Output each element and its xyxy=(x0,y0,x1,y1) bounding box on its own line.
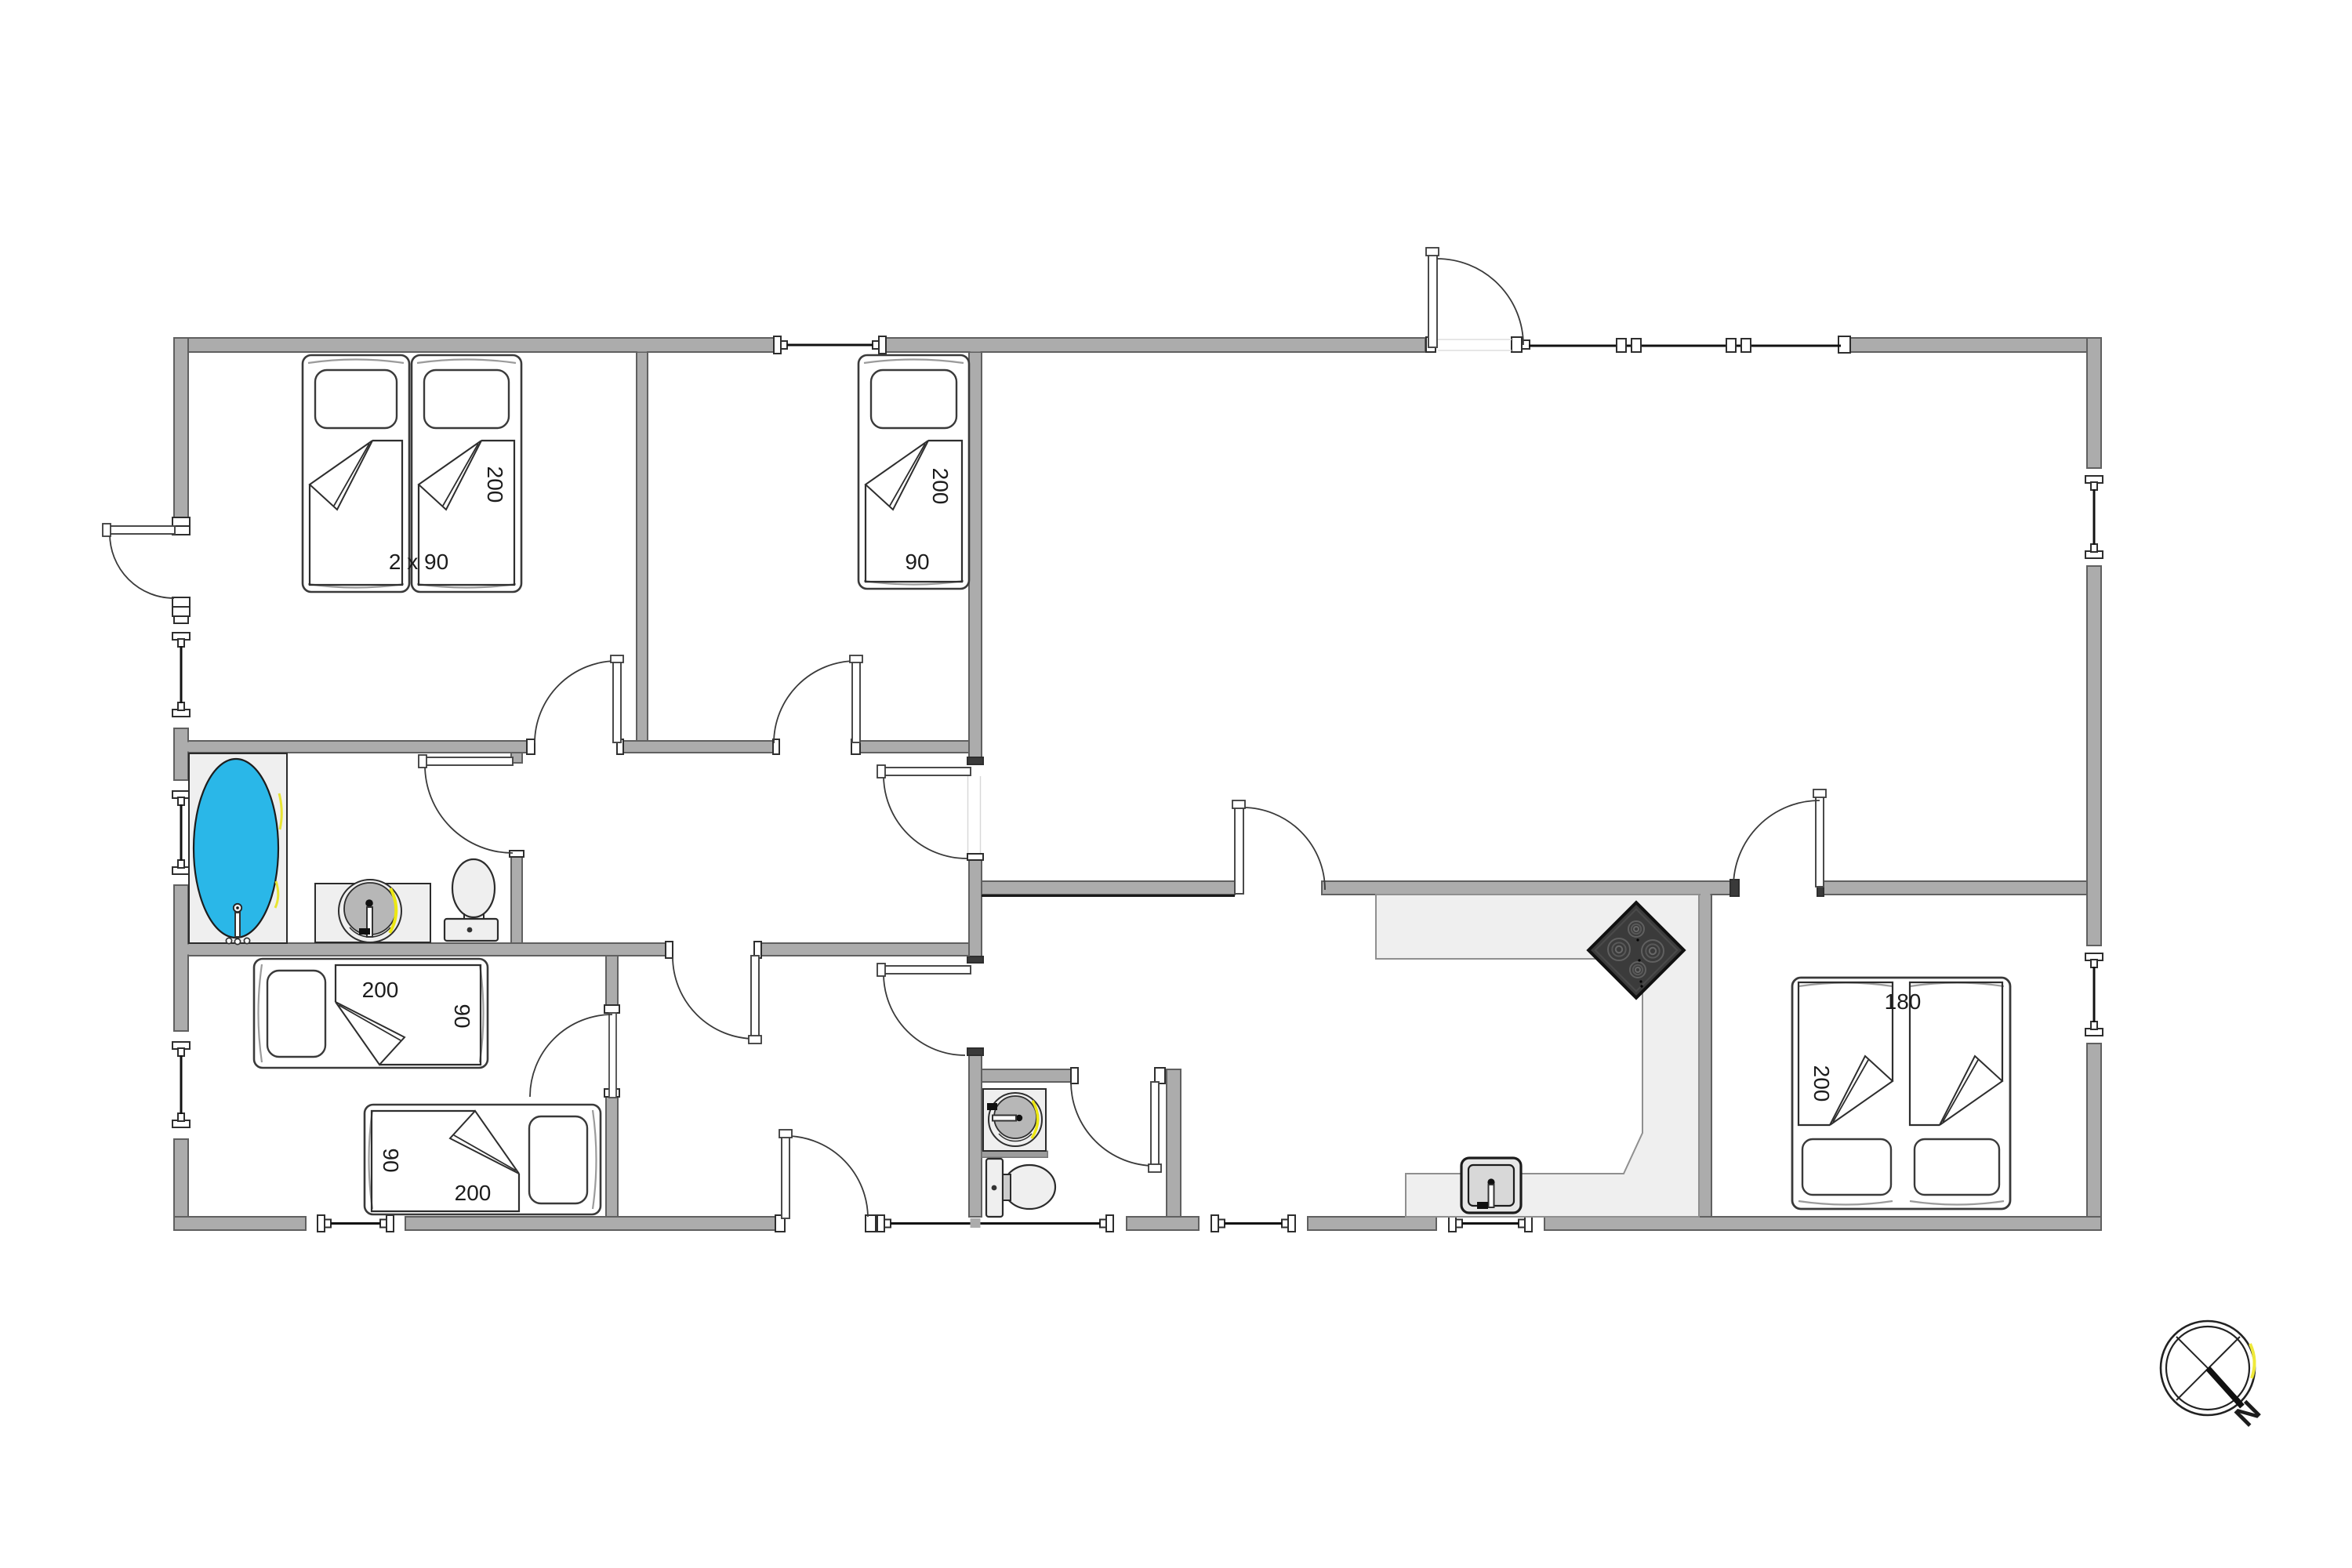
svg-text:200: 200 xyxy=(362,978,399,1002)
svg-text:200: 200 xyxy=(1809,1065,1834,1102)
svg-text:2 x 90: 2 x 90 xyxy=(389,550,448,574)
svg-text:90: 90 xyxy=(905,550,929,574)
svg-text:180: 180 xyxy=(1885,989,1922,1014)
svg-text:200: 200 xyxy=(928,468,953,505)
svg-text:90: 90 xyxy=(379,1148,403,1172)
svg-text:200: 200 xyxy=(483,466,507,503)
svg-text:90: 90 xyxy=(450,1004,474,1028)
svg-text:200: 200 xyxy=(455,1181,492,1205)
